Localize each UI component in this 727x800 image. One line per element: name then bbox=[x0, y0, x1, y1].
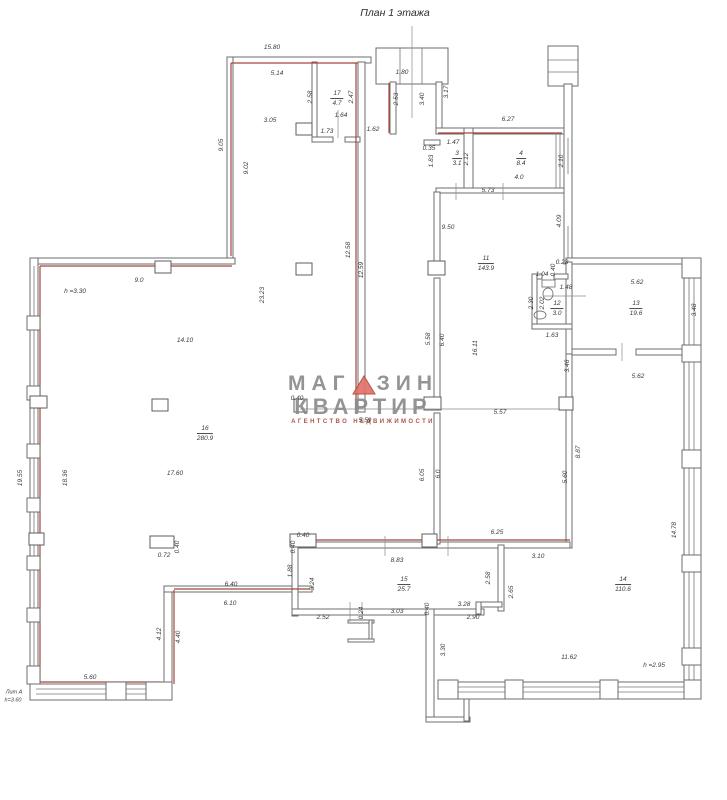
room-label: 1525.7 bbox=[397, 576, 410, 594]
dimension-label: 2.02 bbox=[540, 297, 547, 310]
dimension-label: 6.10 bbox=[224, 601, 237, 608]
dimension-label: 0.40 bbox=[551, 264, 558, 277]
floor-plan-drawing bbox=[0, 0, 727, 800]
dimension-label: 2.12 bbox=[464, 153, 471, 166]
dimension-label: 9.0 bbox=[134, 278, 143, 285]
room-label: 123.0 bbox=[550, 300, 563, 318]
room-label: 11143.9 bbox=[478, 255, 494, 273]
dimension-label: 1.80 bbox=[396, 70, 409, 77]
dimension-label: 0.40 bbox=[425, 603, 432, 616]
room-number: 16 bbox=[197, 425, 213, 434]
room-area: 25.7 bbox=[397, 586, 410, 594]
room-number: 17 bbox=[330, 90, 343, 99]
dimension-label: 2.58 bbox=[308, 91, 315, 104]
room-area: 3.0 bbox=[550, 310, 563, 318]
dimension-label: 6.40 bbox=[225, 582, 238, 589]
room-area: 4.7 bbox=[330, 100, 343, 108]
dimension-label: 0.28 bbox=[556, 260, 569, 267]
dimension-label: Лит А bbox=[6, 690, 23, 696]
dimension-label: 5.60 bbox=[563, 471, 570, 484]
dimension-label: 0.72 bbox=[158, 553, 171, 560]
room-area: 3.1 bbox=[452, 160, 462, 168]
dimension-label: 23.23 bbox=[260, 287, 267, 303]
dimension-label: 1.63 bbox=[546, 333, 559, 340]
room-area: 280.9 bbox=[197, 435, 213, 443]
room-number: 11 bbox=[478, 255, 494, 264]
dimension-label: 4.40 bbox=[176, 631, 183, 644]
dimension-label: 3.48 bbox=[692, 304, 699, 317]
dimension-label: 1.64 bbox=[335, 113, 348, 120]
dimension-label: 1.88 bbox=[288, 565, 295, 578]
dimension-label: h =3.30 bbox=[64, 289, 86, 296]
dimension-label: 18.36 bbox=[63, 470, 70, 486]
dimension-label: 12.58 bbox=[346, 242, 353, 258]
dimension-label: 0.40 bbox=[175, 541, 182, 554]
room-area: 19.6 bbox=[629, 310, 642, 318]
dimension-label: h =2.95 bbox=[643, 663, 665, 670]
dimension-label: 1.48 bbox=[560, 285, 573, 292]
dimension-label: 3.28 bbox=[458, 602, 471, 609]
dimension-label: 0.40 bbox=[297, 533, 310, 540]
dimension-label: 8.87 bbox=[576, 446, 583, 459]
room-number: 4 bbox=[516, 150, 526, 159]
room-label: 1319.6 bbox=[629, 300, 642, 318]
dimension-label: 0.24 bbox=[359, 607, 366, 620]
dimension-label: 5.58 bbox=[426, 333, 433, 346]
dimension-label: 3.24 bbox=[310, 578, 317, 591]
dimension-label: 0.40 bbox=[291, 396, 304, 403]
dimension-label: 0.40 bbox=[291, 541, 298, 554]
dimension-label: 6.25 bbox=[491, 530, 504, 537]
dimension-label: 5.14 bbox=[271, 71, 284, 78]
room-label: 174.7 bbox=[330, 90, 343, 108]
dimension-label: 12.59 bbox=[359, 262, 366, 278]
dimension-label: 17.60 bbox=[167, 471, 183, 478]
dimension-label: 2.90 bbox=[467, 615, 480, 622]
dimension-label: 9.05 bbox=[219, 139, 226, 152]
dimension-label: 4.0 bbox=[514, 175, 523, 182]
dimension-label: 2.10 bbox=[559, 155, 566, 168]
dimension-label: 19.55 bbox=[18, 470, 25, 486]
dimension-label: 16.11 bbox=[473, 340, 480, 356]
page-title: План 1 этажа bbox=[360, 7, 430, 19]
dimension-label: 3.40 bbox=[420, 93, 427, 106]
dimension-label: 6.0 bbox=[436, 469, 443, 478]
dimension-label: 5.73 bbox=[482, 188, 495, 195]
room-number: 13 bbox=[629, 300, 642, 309]
dimension-label: 5.60 bbox=[84, 675, 97, 682]
room-label: 14110.6 bbox=[615, 576, 631, 594]
room-number: 3 bbox=[452, 150, 462, 159]
dimension-label: 2.65 bbox=[509, 586, 516, 599]
dimension-label: 1.83 bbox=[429, 155, 436, 168]
dimension-label: 3.03 bbox=[391, 609, 404, 616]
dimension-label: 3.05 bbox=[264, 118, 277, 125]
dimension-label: 3.46 bbox=[565, 360, 572, 373]
room-area: 143.9 bbox=[478, 265, 494, 273]
dimension-label: 2.30 bbox=[529, 297, 536, 310]
dimension-label: 2.53 bbox=[394, 93, 401, 106]
dimension-lines bbox=[300, 26, 622, 622]
dimension-label: 6.40 bbox=[440, 334, 447, 347]
dimension-label: 15.80 bbox=[264, 45, 280, 52]
dimension-label: 2.58 bbox=[486, 572, 493, 585]
dimension-label: 5.62 bbox=[632, 374, 645, 381]
dimension-label: 5.57 bbox=[494, 410, 507, 417]
dimension-label: 1.73 bbox=[321, 129, 334, 136]
dimension-label: 3.10 bbox=[532, 554, 545, 561]
dimension-label: 11.62 bbox=[561, 655, 577, 662]
dimension-label: 14.10 bbox=[177, 338, 193, 345]
room-area: 8.4 bbox=[516, 160, 526, 168]
room-area: 110.6 bbox=[615, 586, 631, 594]
room-number: 15 bbox=[397, 576, 410, 585]
dimension-label: 14.78 bbox=[672, 522, 679, 538]
dimension-label: 2.47 bbox=[349, 91, 356, 104]
dimension-label: 3.17 bbox=[444, 86, 451, 99]
floor-plan-page: МАГ ЗИН КВАРТИР агентство недвижимости П… bbox=[0, 0, 727, 800]
dimension-label: 9.02 bbox=[244, 162, 251, 175]
dimension-label: 3.30 bbox=[441, 644, 448, 657]
dimension-label: 2.52 bbox=[317, 615, 330, 622]
dimension-label: 8.83 bbox=[391, 558, 404, 565]
room-label: 33.1 bbox=[452, 150, 462, 168]
dimension-label: 4.12 bbox=[157, 628, 164, 641]
dimension-label: 6.27 bbox=[502, 117, 515, 124]
dimension-label: 1.62 bbox=[367, 127, 380, 134]
room-label: 16280.9 bbox=[197, 425, 213, 443]
room-number: 14 bbox=[615, 576, 631, 585]
dimension-label: 1.47 bbox=[447, 140, 460, 147]
dimension-label: 1.04 bbox=[536, 272, 549, 279]
dimension-label: 0.35 bbox=[423, 146, 436, 153]
dimension-label: 5.62 bbox=[631, 280, 644, 287]
walls bbox=[30, 46, 701, 722]
room-number: 12 bbox=[550, 300, 563, 309]
room-label: 48.4 bbox=[516, 150, 526, 168]
dimension-label: h=3.60 bbox=[5, 698, 22, 704]
dimension-label: 4.09 bbox=[557, 215, 564, 228]
dimension-label: 6.05 bbox=[420, 469, 427, 482]
dimension-label: 5.59 bbox=[359, 418, 372, 425]
dimension-label: 9.50 bbox=[442, 225, 455, 232]
